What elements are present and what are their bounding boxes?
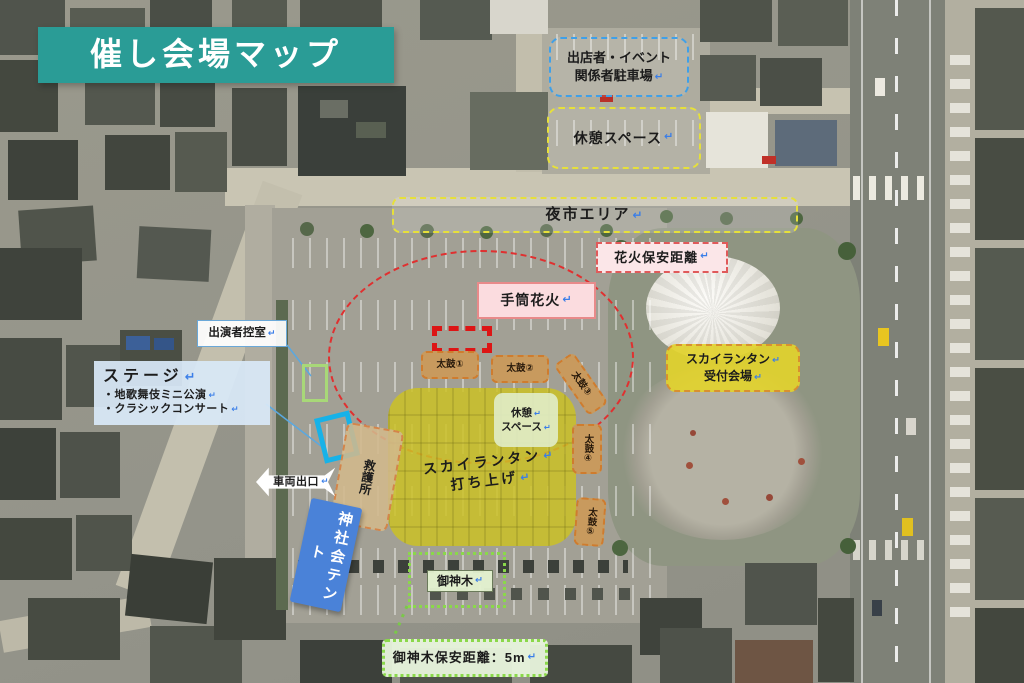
bg-decor-block <box>861 0 863 683</box>
return-arrow-icon: ↵ <box>528 651 538 665</box>
taiko-5-label: 太鼓⑤ <box>583 507 598 538</box>
return-arrow-icon: ↵ <box>231 404 239 414</box>
taiko-2-label: 太鼓② <box>506 363 533 376</box>
bg-decor-block <box>470 92 548 170</box>
vendor-parking-line1: 出店者・イベント <box>567 49 671 67</box>
map-title: 催し会場マップ <box>90 33 342 76</box>
stage-title-wrap: ステージ↵ <box>103 366 199 388</box>
bg-decor-block <box>60 432 120 498</box>
bg-decor-block <box>853 176 931 200</box>
bg-decor-block <box>420 0 492 40</box>
tezutsu-text: 手筒花火 <box>500 291 560 310</box>
return-arrow-icon: ↵ <box>321 476 329 488</box>
return-arrow-icon: ↵ <box>544 422 551 432</box>
rest-space-center-area: 休憩↵ スペース↵ <box>494 393 558 447</box>
performer-waiting-room-label: 出演者控室↵ <box>197 320 287 347</box>
return-arrow-icon: ↵ <box>475 575 483 588</box>
vendor-parking-line2-wrap: 関係者駐車場↵ <box>575 67 664 85</box>
return-arrow-icon: ↵ <box>520 471 534 484</box>
performer-room-text: 出演者控室 <box>208 326 266 342</box>
bg-decor-block <box>660 628 732 683</box>
bg-decor-block <box>878 328 889 346</box>
rest-center-line2: スペース <box>501 421 542 433</box>
bg-decor-block <box>766 494 773 501</box>
taiko-4-label: 太鼓④ <box>581 434 594 464</box>
bg-decor-block <box>0 248 82 320</box>
taiko-station-5: 太鼓⑤ <box>573 497 606 547</box>
stage-area-outline <box>302 364 328 402</box>
bg-decor-block <box>8 140 78 200</box>
bg-decor-block <box>612 540 628 556</box>
bg-decor-block <box>0 338 62 420</box>
bg-decor-block <box>775 120 837 166</box>
bg-decor-block <box>105 135 170 190</box>
rest-center-line1-wrap: 休憩↵ <box>511 406 541 420</box>
return-arrow-icon: ↵ <box>664 130 674 145</box>
bg-decor-block <box>838 242 856 260</box>
bg-decor-block <box>798 458 805 465</box>
bg-decor-block <box>762 156 776 164</box>
sacred-tree-text: 御神木 <box>437 573 473 589</box>
stage-item-2: ・クラシックコンサート <box>103 403 229 415</box>
stage-item-1-wrap: ・地歌舞伎ミニ公演↵ <box>103 388 216 403</box>
bg-decor-block <box>320 100 348 118</box>
bg-decor-block <box>975 138 1024 240</box>
bg-decor-block <box>975 608 1024 683</box>
lantern-reception-area: スカイランタン↵ 受付会場↵ <box>666 344 800 392</box>
bg-decor-block <box>853 540 931 560</box>
return-arrow-icon: ↵ <box>562 293 572 308</box>
reception-line2: 受付会場 <box>704 369 752 383</box>
bg-decor-block <box>686 462 693 469</box>
return-arrow-icon: ↵ <box>543 449 557 462</box>
return-arrow-icon: ↵ <box>754 372 762 383</box>
bg-decor-block <box>840 538 856 554</box>
bg-decor-block <box>706 112 768 168</box>
bg-decor-block <box>356 122 386 138</box>
vehicle-exit-label: 車両出口 <box>273 475 319 490</box>
taiko-1-label: 太鼓① <box>436 359 463 372</box>
tezutsu-launch-point-outline <box>432 326 492 353</box>
taiko-station-2: 太鼓② <box>491 355 549 383</box>
rest-center-line1: 休憩 <box>511 407 532 419</box>
night-market-label: 夜市エリア <box>545 205 630 225</box>
bg-decor-block <box>975 8 1024 130</box>
bg-decor-block <box>975 498 1024 600</box>
return-arrow-icon: ↵ <box>700 250 710 264</box>
return-arrow-icon: ↵ <box>772 355 780 366</box>
bg-decor-block <box>700 55 756 101</box>
bg-decor-block <box>745 563 817 625</box>
stage-item-1: ・地歌舞伎ミニ公演 <box>103 389 207 401</box>
bg-decor-block <box>360 224 374 238</box>
bg-decor-block <box>906 418 916 435</box>
return-arrow-icon: ↵ <box>534 408 541 418</box>
stage-item-2-wrap: ・クラシックコンサート↵ <box>103 402 239 417</box>
sacred-tree-safety-text: 御神木保安距離：5m <box>393 649 526 667</box>
vendor-parking-line2: 関係者駐車場 <box>575 68 653 83</box>
bg-decor-block <box>232 88 287 166</box>
bg-decor-block <box>875 78 885 96</box>
bg-decor-block <box>700 0 772 42</box>
bg-decor-block <box>690 430 696 436</box>
bg-decor-block <box>298 86 406 176</box>
bg-decor-block <box>300 222 314 236</box>
bg-decor-block <box>175 132 227 192</box>
night-market-area: 夜市エリア↵ <box>392 197 798 233</box>
bg-decor-block <box>850 0 946 683</box>
rest-space-top-area: 休憩スペース↵ <box>547 107 701 169</box>
reception-line1-wrap: スカイランタン↵ <box>686 351 780 368</box>
return-arrow-icon: ↵ <box>655 72 664 83</box>
rest-space-top-label: 休憩スペース <box>574 129 662 148</box>
bg-decor-block <box>76 515 132 571</box>
bg-decor-block <box>125 554 213 624</box>
stage-info-box: ステージ↵ ・地歌舞伎ミニ公演↵ ・クラシックコンサート↵ <box>94 361 270 425</box>
bg-decor-block <box>722 498 729 505</box>
bg-decor-block <box>735 640 813 683</box>
fireworks-safety-text: 花火保安距離 <box>614 249 698 267</box>
reception-line2-wrap: 受付会場↵ <box>704 368 762 385</box>
bg-decor-block <box>760 58 822 106</box>
bg-decor-block <box>778 0 848 46</box>
bg-decor-block <box>975 368 1024 490</box>
bg-decor-block <box>975 248 1024 360</box>
bg-decor-block <box>490 0 548 34</box>
rest-center-line2-wrap: スペース↵ <box>501 420 551 434</box>
map-title-banner: 催し会場マップ <box>38 27 394 83</box>
bg-decor-block <box>818 598 854 682</box>
bg-decor-block <box>902 518 913 536</box>
return-arrow-icon: ↵ <box>209 390 217 400</box>
return-arrow-icon: ↵ <box>185 369 200 384</box>
bg-decor-block <box>929 0 931 683</box>
sacred-tree-label: 御神木↵ <box>427 570 493 592</box>
taiko-station-1: 太鼓① <box>421 351 479 379</box>
first-aid-label: 救護所 <box>356 458 378 496</box>
tezutsu-fireworks-label: 手筒花火↵ <box>477 282 596 319</box>
bg-decor-block <box>300 640 392 683</box>
stage-title: ステージ <box>103 368 183 385</box>
bg-decor-block <box>126 336 150 350</box>
bg-decor-block <box>950 55 970 625</box>
return-arrow-icon: ↵ <box>632 207 644 223</box>
bg-decor-block <box>154 338 174 350</box>
bg-decor-block <box>0 428 56 500</box>
sacred-tree-safety-label: 御神木保安距離：5m↵ <box>382 639 548 677</box>
bg-decor-block <box>28 598 120 660</box>
bg-decor-block <box>872 600 882 616</box>
vendor-parking-area: 出店者・イベント 関係者駐車場↵ <box>549 37 689 97</box>
bg-decor-block <box>137 226 212 282</box>
reception-line1: スカイランタン <box>686 352 770 366</box>
fireworks-safety-label: 花火保安距離↵ <box>596 242 728 273</box>
bg-decor-block <box>895 0 898 683</box>
bg-decor-block <box>0 518 72 580</box>
event-venue-map: 催し会場マップ 出店者・イベント 関係者駐車場↵ 休憩スペース↵ 夜市エリア↵ … <box>0 0 1024 683</box>
return-arrow-icon: ↵ <box>268 327 276 339</box>
